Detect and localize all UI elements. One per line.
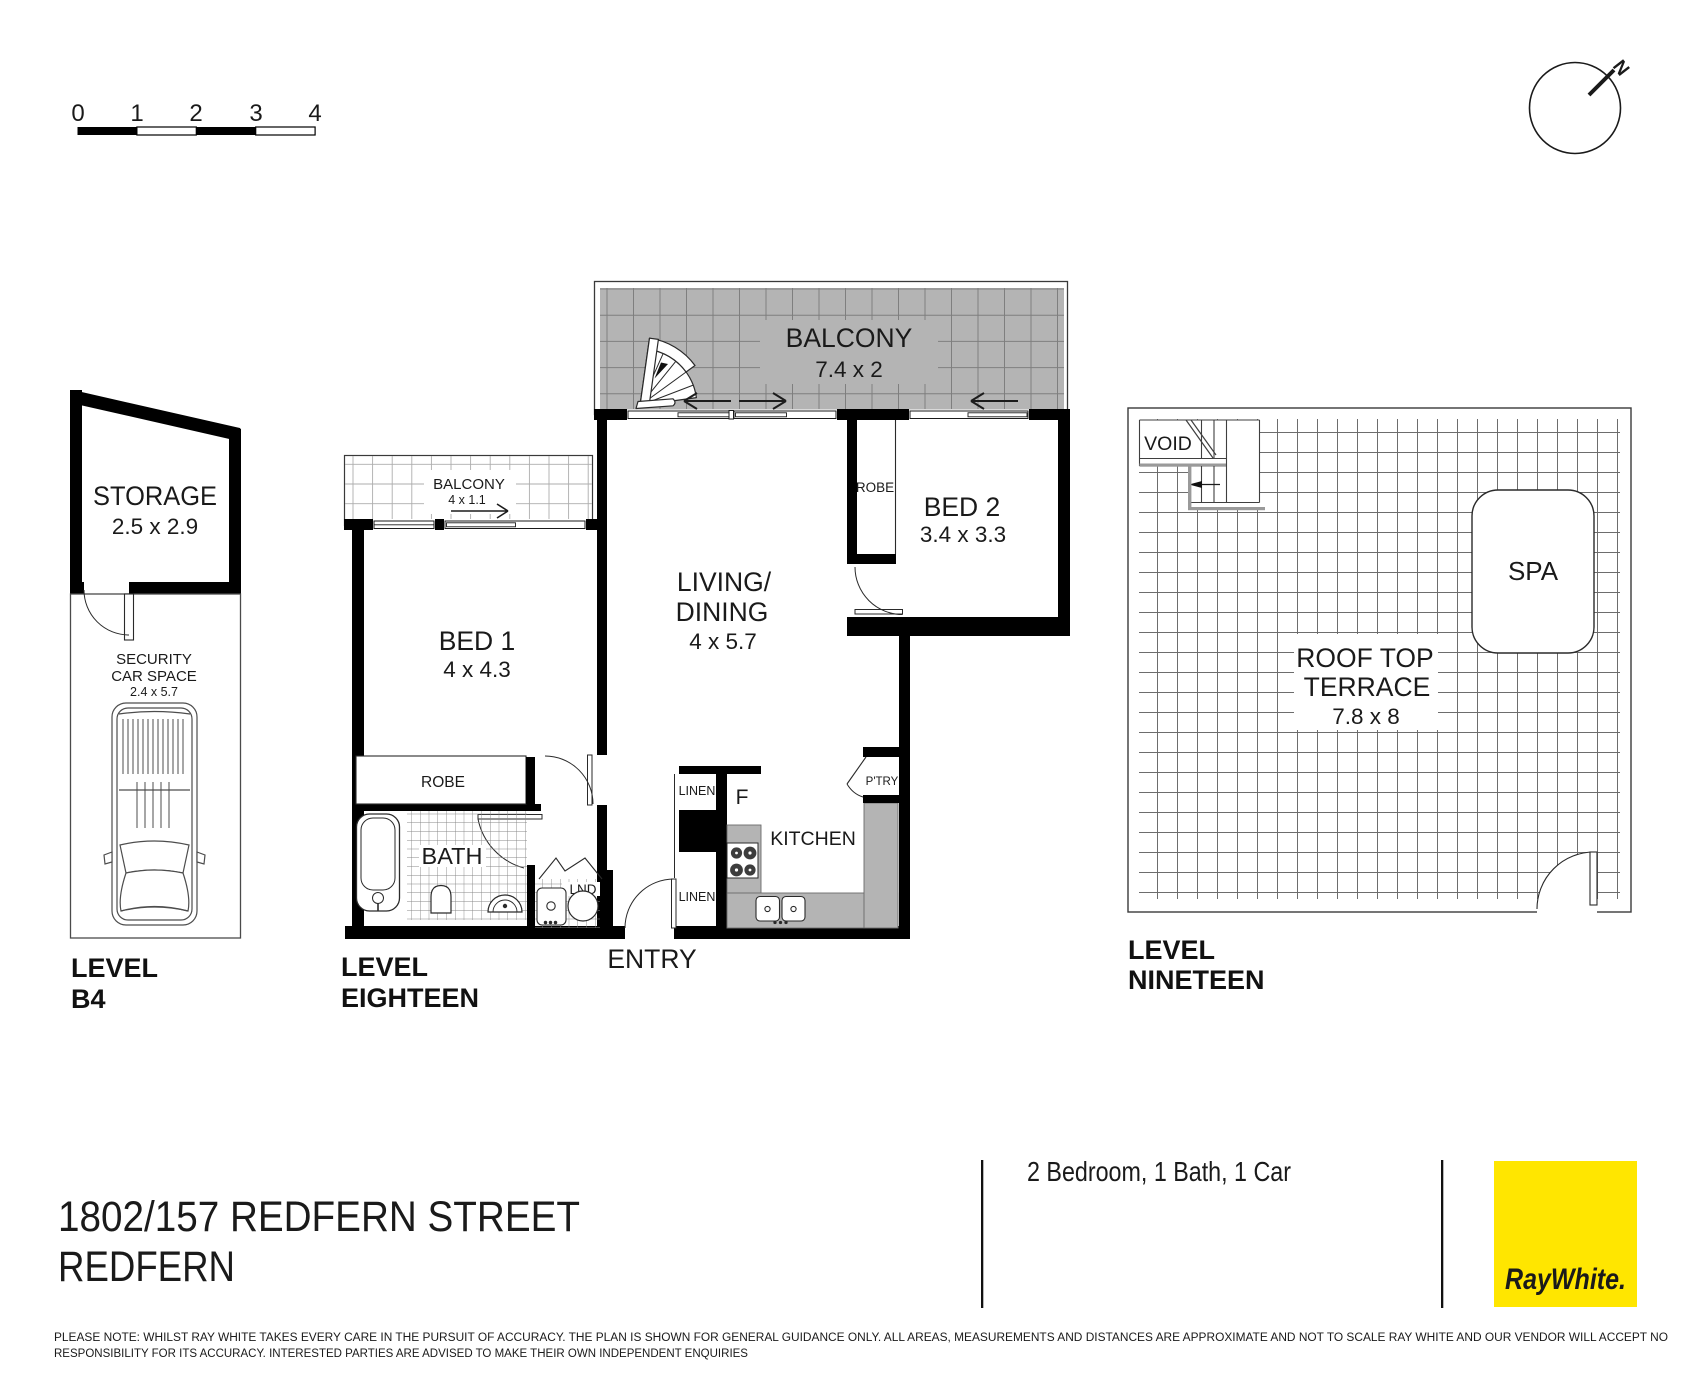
svg-text:ENTRY: ENTRY: [607, 944, 697, 974]
svg-text:ROBE: ROBE: [421, 774, 465, 791]
svg-text:N: N: [1608, 56, 1633, 80]
svg-text:KITCHEN: KITCHEN: [770, 828, 856, 850]
svg-text:3.4 x 3.3: 3.4 x 3.3: [920, 522, 1006, 547]
svg-text:7.4 x 2: 7.4 x 2: [815, 357, 883, 382]
svg-text:BALCONY: BALCONY: [433, 476, 505, 493]
svg-text:REDFERN: REDFERN: [58, 1243, 235, 1291]
svg-text:BALCONY: BALCONY: [786, 323, 913, 353]
svg-text:1802/157 REDFERN STREET: 1802/157 REDFERN STREET: [58, 1193, 580, 1241]
svg-text:P'TRY: P'TRY: [866, 776, 899, 788]
svg-text:0: 0: [71, 100, 84, 127]
svg-text:3: 3: [249, 100, 262, 127]
svg-text:CAR SPACE: CAR SPACE: [111, 668, 197, 685]
svg-text:BED 1: BED 1: [439, 626, 516, 656]
svg-text:4 x 4.3: 4 x 4.3: [443, 657, 511, 682]
svg-text:LIVING/: LIVING/: [677, 567, 772, 597]
svg-text:LEVEL: LEVEL: [1128, 935, 1215, 965]
svg-text:2: 2: [189, 100, 202, 127]
svg-text:PLEASE NOTE: WHILST RAY WHITE: PLEASE NOTE: WHILST RAY WHITE TAKES EVER…: [54, 1330, 1668, 1344]
svg-text:ROOF TOP: ROOF TOP: [1296, 643, 1433, 673]
svg-text:2.4 x 5.7: 2.4 x 5.7: [130, 685, 178, 699]
svg-text:2 Bedroom, 1 Bath, 1 Car: 2 Bedroom, 1 Bath, 1 Car: [1027, 1156, 1291, 1187]
svg-text:ROBE: ROBE: [856, 480, 894, 495]
svg-text:F: F: [736, 786, 749, 809]
svg-text:1: 1: [130, 100, 143, 127]
svg-text:RESPONSIBILITY FOR ITS ACCURAC: RESPONSIBILITY FOR ITS ACCURACY. INTERES…: [54, 1346, 748, 1360]
svg-text:B4: B4: [71, 984, 106, 1014]
svg-text:7.8 x 8: 7.8 x 8: [1332, 704, 1400, 729]
svg-text:RayWhite.: RayWhite.: [1505, 1263, 1626, 1296]
svg-text:LINEN: LINEN: [679, 890, 716, 904]
svg-text:TERRACE: TERRACE: [1304, 672, 1431, 702]
svg-text:LEVEL: LEVEL: [71, 953, 158, 983]
svg-text:4: 4: [308, 100, 321, 127]
svg-text:DINING: DINING: [676, 597, 769, 627]
svg-text:EIGHTEEN: EIGHTEEN: [341, 983, 479, 1013]
svg-text:4 x 1.1: 4 x 1.1: [448, 493, 486, 507]
svg-text:STORAGE: STORAGE: [93, 481, 217, 511]
svg-text:LINEN: LINEN: [679, 784, 716, 798]
svg-text:BATH: BATH: [422, 843, 483, 869]
svg-text:SECURITY: SECURITY: [116, 651, 192, 668]
svg-text:NINETEEN: NINETEEN: [1128, 965, 1265, 995]
svg-text:SPA: SPA: [1508, 556, 1559, 586]
svg-text:VOID: VOID: [1144, 433, 1192, 455]
svg-text:BED 2: BED 2: [924, 492, 1001, 522]
svg-text:LEVEL: LEVEL: [341, 952, 428, 982]
svg-text:4 x 5.7: 4 x 5.7: [689, 629, 757, 654]
svg-text:2.5 x 2.9: 2.5 x 2.9: [112, 514, 198, 539]
